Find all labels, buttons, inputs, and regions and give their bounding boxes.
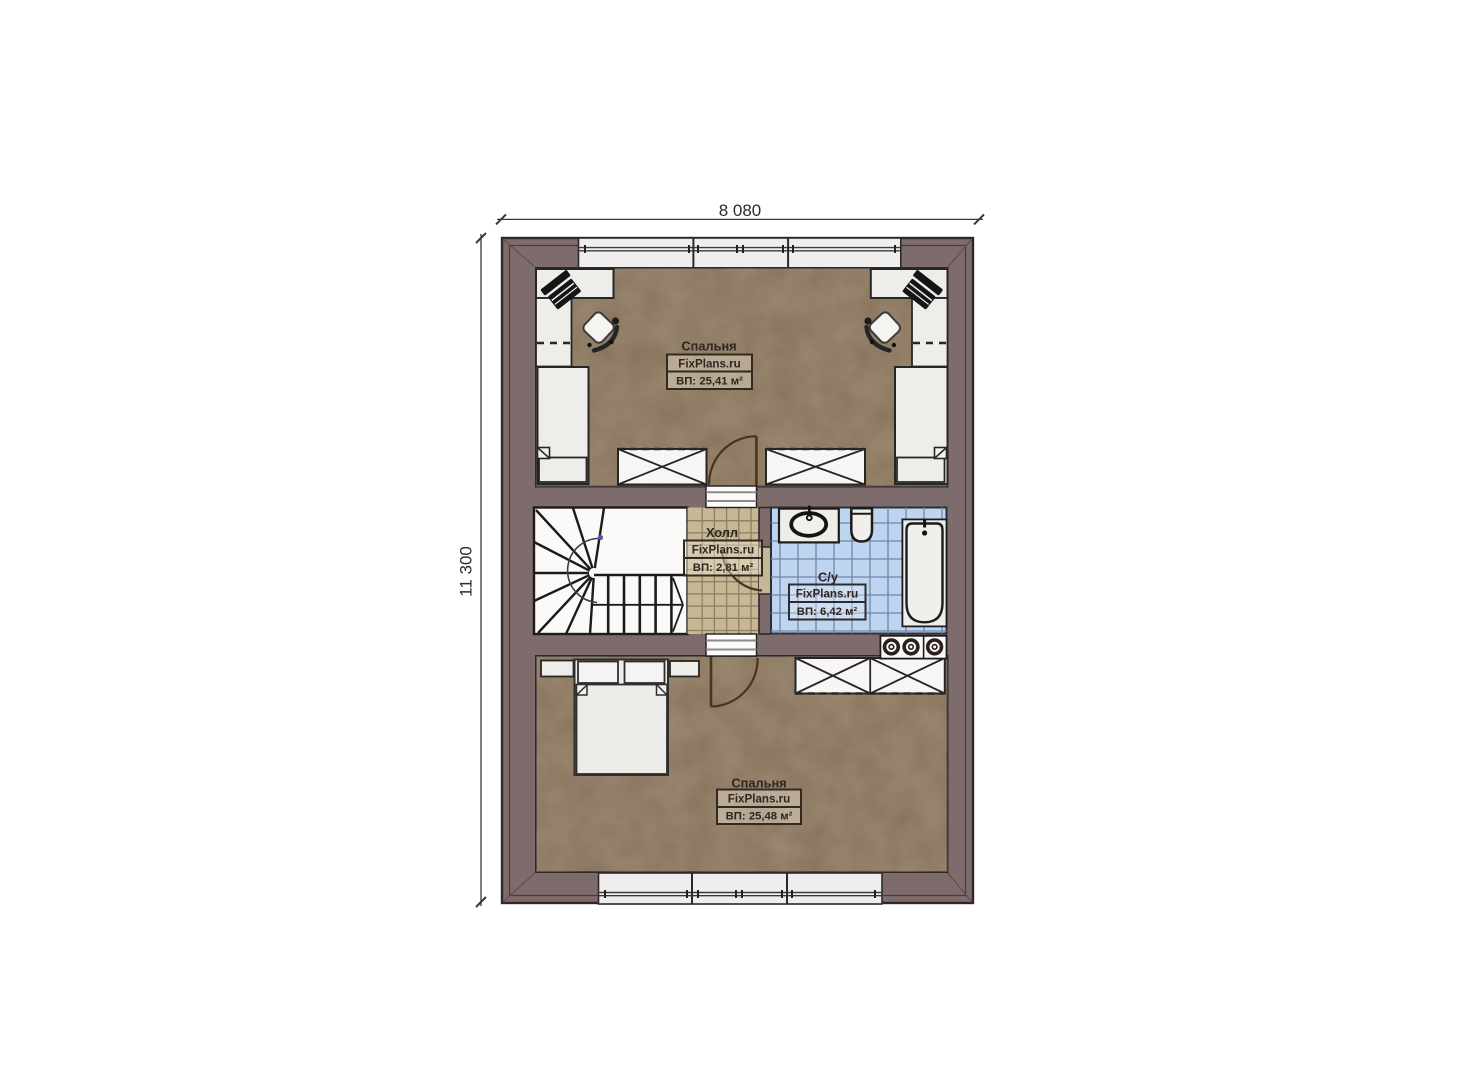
svg-text:ВП: 25,48 м²: ВП: 25,48 м² <box>726 811 793 823</box>
svg-text:FixPlans.ru: FixPlans.ru <box>728 793 791 806</box>
svg-text:FixPlans.ru: FixPlans.ru <box>796 588 859 601</box>
svg-text:FixPlans.ru: FixPlans.ru <box>678 358 741 371</box>
svg-text:Холл: Холл <box>706 525 738 540</box>
svg-text:Спальня: Спальня <box>731 776 786 791</box>
svg-text:ВП: 6,42 м²: ВП: 6,42 м² <box>797 606 858 618</box>
svg-text:ВП: 2,81 м²: ВП: 2,81 м² <box>693 562 754 574</box>
svg-text:С/у: С/у <box>818 570 839 585</box>
svg-text:Спальня: Спальня <box>681 339 736 354</box>
svg-text:ВП: 25,41 м²: ВП: 25,41 м² <box>676 376 743 388</box>
svg-text:11 300: 11 300 <box>457 546 476 597</box>
svg-text:FixPlans.ru: FixPlans.ru <box>692 544 755 557</box>
svg-text:8 080: 8 080 <box>719 201 762 220</box>
